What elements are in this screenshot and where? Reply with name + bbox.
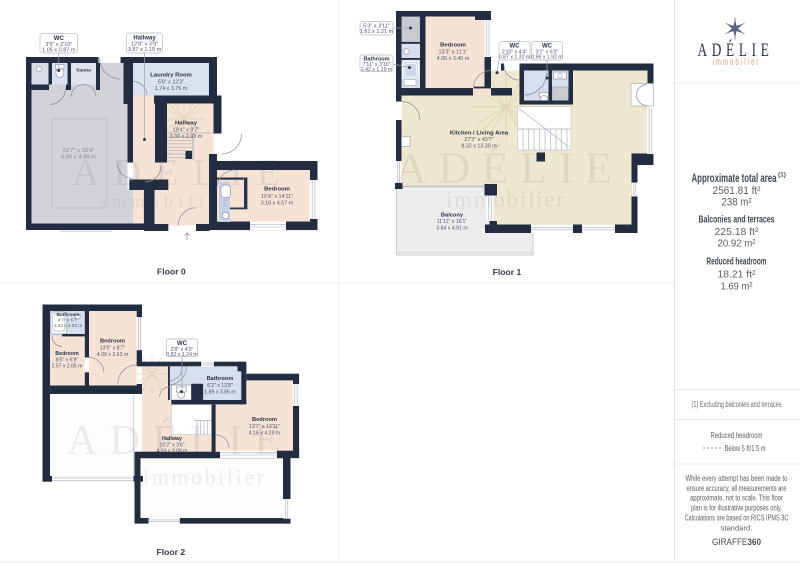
svg-text:Floor 0: Floor 0 [157, 267, 186, 277]
svg-text:20.92 m²: 20.92 m² [718, 238, 756, 250]
svg-text:6'2" x 12'8": 6'2" x 12'8" [207, 383, 233, 389]
svg-text:3.64 x 4.91 m: 3.64 x 4.91 m [436, 226, 467, 232]
svg-text:(1) Excluding balconies and te: (1) Excluding balconies and terraces [692, 400, 782, 409]
svg-text:1.05 x 0.87 m: 1.05 x 0.87 m [42, 48, 76, 54]
svg-text:10'4" x 14'11": 10'4" x 14'11" [261, 194, 293, 200]
svg-text:19'4" x 9'7": 19'4" x 9'7" [173, 128, 199, 134]
svg-text:0.96 x 1.92 m: 0.96 x 1.92 m [531, 55, 562, 61]
svg-text:1.89 x 3.86 m: 1.89 x 3.86 m [204, 390, 235, 396]
svg-text:Kitchen / Living Area: Kitchen / Living Area [450, 130, 509, 136]
svg-text:Bedroom: Bedroom [55, 351, 79, 357]
svg-text:1.42 x 2.03 m: 1.42 x 2.03 m [54, 323, 82, 328]
svg-text:4.05 x 3.40 m: 4.05 x 3.40 m [437, 56, 470, 62]
svg-text:Laundry Room: Laundry Room [150, 73, 192, 79]
svg-text:11'11" x 16'1": 11'11" x 16'1" [437, 219, 468, 225]
svg-text:immobilier: immobilier [143, 465, 265, 490]
svg-text:Calculations are based on RICS: Calculations are based on RICS IPMS 3C [685, 514, 789, 523]
svg-text:1.74 x 3.76 m: 1.74 x 3.76 m [155, 86, 188, 92]
svg-text:238 m²: 238 m² [722, 197, 752, 209]
svg-text:27'3" x 43'7": 27'3" x 43'7" [464, 137, 493, 143]
svg-text:Reduced headroom: Reduced headroom [711, 430, 763, 440]
svg-text:1.61 x 1.21 m: 1.61 x 1.21 m [360, 29, 394, 35]
svg-text:2561.81 ft²: 2561.81 ft² [713, 185, 761, 197]
svg-text:4.09 x 2.62 m: 4.09 x 2.62 m [97, 352, 128, 358]
svg-text:13'5" x 8'7": 13'5" x 8'7" [100, 346, 126, 352]
svg-text:immobilier: immobilier [102, 192, 228, 211]
svg-text:13'3" x 11'1": 13'3" x 11'1" [439, 50, 468, 56]
svg-text:Sauna: Sauna [76, 68, 91, 74]
svg-text:Floor 2: Floor 2 [156, 547, 185, 557]
svg-text:Bedroom: Bedroom [100, 339, 125, 345]
svg-text:Below 5 ft/1.5 m: Below 5 ft/1.5 m [725, 443, 766, 453]
svg-text:2.57 x 2.05 m: 2.57 x 2.05 m [52, 364, 83, 370]
svg-text:standard.: standard. [721, 523, 753, 532]
svg-text:3.16 x 4.57 m: 3.16 x 4.57 m [261, 201, 294, 207]
svg-text:ensure accuracy, all measureme: ensure accuracy, all measurements are [687, 484, 787, 493]
svg-text:Bedroom: Bedroom [440, 43, 466, 49]
svg-text:Balcony: Balcony [441, 213, 464, 219]
svg-text:immobilier: immobilier [713, 57, 761, 68]
svg-text:Reduced headroom: Reduced headroom [707, 257, 767, 268]
svg-text:0.87 x 1.32 m: 0.87 x 1.32 m [499, 55, 530, 61]
svg-text:3.36 x 2.93 m: 3.36 x 2.93 m [170, 134, 203, 140]
svg-text:Floor 1: Floor 1 [493, 267, 522, 277]
svg-text:GIRAFFE360: GIRAFFE360 [712, 537, 761, 547]
svg-text:plan is for illustrative purpo: plan is for illustrative purposes only. [691, 504, 782, 513]
svg-text:225.18 ft²: 225.18 ft² [715, 226, 759, 238]
svg-text:Bathroom: Bathroom [207, 376, 234, 382]
svg-text:Hallway: Hallway [175, 121, 198, 127]
svg-text:Approximate total area: Approximate total area [692, 171, 777, 185]
svg-text:2.42 x 1.19 m: 2.42 x 1.19 m [361, 67, 392, 73]
svg-text:While every attempt has been m: While every attempt has been made to [686, 474, 788, 483]
svg-text:3.87 x 1.15 m: 3.87 x 1.15 m [128, 47, 162, 53]
svg-text:approximate, not to scale. Thi: approximate, not to scale. This floor [690, 494, 783, 503]
svg-text:18.21 ft²: 18.21 ft² [718, 269, 756, 281]
svg-text:1.69 m²: 1.69 m² [721, 281, 753, 293]
svg-text:5'8" x 12'3": 5'8" x 12'3" [158, 80, 184, 86]
svg-text:(1): (1) [778, 172, 786, 179]
svg-text:4'7" x 6'7": 4'7" x 6'7" [58, 318, 79, 323]
svg-text:Balconies and terraces: Balconies and terraces [699, 215, 775, 226]
